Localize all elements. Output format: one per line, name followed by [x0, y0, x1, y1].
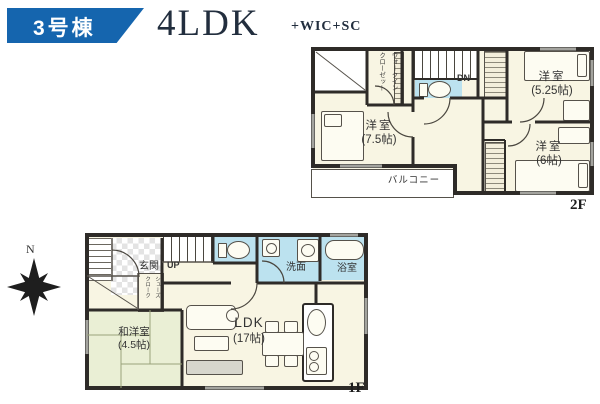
wic-label-line1: ウォークイン	[387, 52, 399, 104]
ldk-size: (17帖)	[213, 332, 285, 346]
floor1-tag: 1F	[348, 380, 365, 397]
stairs-dn-label: DN	[457, 73, 470, 84]
bedroom-75-name: 洋室	[340, 119, 418, 133]
plan-linework	[0, 0, 600, 404]
ldk-label: LDK (17帖)	[213, 315, 285, 346]
balcony-label: バルコニー	[372, 175, 456, 187]
bedroom-6-name: 洋室	[512, 140, 586, 154]
shoes-closet-line2: クローク	[141, 276, 151, 309]
bedroom-525-label: 洋室 (5.25帖)	[512, 70, 592, 99]
bathroom-label: 浴室	[327, 263, 367, 276]
bedroom-525-name: 洋室	[512, 70, 592, 84]
bedroom-6-size: (6帖)	[512, 154, 586, 168]
floor2-void-diagonal	[316, 52, 365, 90]
floorplan-page: 3号棟 4LDK +WIC+SC	[0, 0, 600, 404]
bedroom-525-size: (5.25帖)	[512, 84, 592, 98]
stairs-up-label: UP	[167, 260, 180, 271]
shoes-closet-label: シューズ クローク	[141, 276, 161, 309]
japanese-room-size: (4.5帖)	[100, 339, 168, 352]
floor2-tag: 2F	[570, 197, 587, 214]
wic-label-line2: クローゼット	[374, 52, 386, 104]
floor1-inner-walls	[87, 235, 366, 388]
entrance-label: 玄関	[131, 261, 167, 274]
japanese-room-label: 和洋室 (4.5帖)	[100, 326, 168, 352]
bedroom-6-label: 洋室 (6帖)	[512, 140, 586, 169]
ldk-name: LDK	[213, 315, 285, 332]
floor1-closet-diagonal	[89, 277, 137, 308]
bedroom-75-size: (7.5帖)	[340, 133, 418, 147]
washroom-label: 洗面	[276, 262, 316, 275]
japanese-room-name: 和洋室	[100, 326, 168, 339]
bedroom-75-label: 洋室 (7.5帖)	[340, 119, 418, 148]
wic-label: ウォークイン クローゼット	[369, 52, 399, 104]
shoes-closet-line1: シューズ	[151, 276, 161, 309]
compass-n-label: N	[26, 242, 35, 257]
